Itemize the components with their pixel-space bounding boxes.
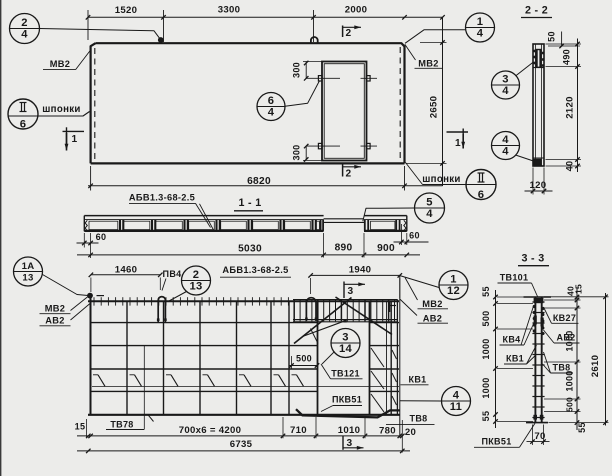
svg-text:шпонки: шпонки bbox=[422, 174, 460, 185]
svg-text:АВ2: АВ2 bbox=[45, 316, 64, 326]
svg-text:2610: 2610 bbox=[590, 355, 601, 378]
svg-text:МВ2: МВ2 bbox=[45, 304, 65, 314]
svg-text:6735: 6735 bbox=[230, 439, 253, 450]
svg-text:1: 1 bbox=[450, 274, 457, 286]
svg-text:55: 55 bbox=[481, 411, 491, 422]
svg-text:6820: 6820 bbox=[247, 176, 271, 187]
svg-text:6: 6 bbox=[478, 189, 485, 201]
svg-text:АБВ1.3-68-2.5: АБВ1.3-68-2.5 bbox=[222, 265, 288, 275]
svg-text:2120: 2120 bbox=[565, 96, 576, 119]
svg-text:4: 4 bbox=[477, 28, 484, 40]
svg-text:50: 50 bbox=[547, 31, 557, 42]
svg-text:490: 490 bbox=[562, 49, 572, 65]
svg-text:15: 15 bbox=[574, 284, 584, 294]
svg-text:ТВ8: ТВ8 bbox=[410, 413, 428, 423]
svg-text:1: 1 bbox=[72, 134, 78, 145]
svg-text:ТВ78: ТВ78 bbox=[110, 419, 133, 429]
svg-text:1: 1 bbox=[477, 16, 484, 28]
svg-text:1010: 1010 bbox=[338, 425, 361, 436]
svg-text:12: 12 bbox=[447, 285, 460, 297]
svg-text:5030: 5030 bbox=[238, 244, 262, 255]
svg-text:55: 55 bbox=[577, 422, 587, 433]
svg-text:1940: 1940 bbox=[349, 264, 372, 275]
svg-text:60: 60 bbox=[96, 232, 107, 242]
svg-text:3 - 3: 3 - 3 bbox=[522, 253, 545, 265]
svg-text:КВ1: КВ1 bbox=[506, 354, 524, 364]
svg-text:ПКВ51: ПКВ51 bbox=[481, 437, 511, 447]
svg-text:13: 13 bbox=[22, 273, 33, 284]
svg-text:1000: 1000 bbox=[481, 377, 491, 398]
svg-text:5: 5 bbox=[426, 197, 433, 209]
svg-text:40: 40 bbox=[565, 161, 575, 172]
svg-text:2: 2 bbox=[346, 169, 352, 180]
svg-text:КВ27: КВ27 bbox=[553, 313, 576, 323]
svg-text:3: 3 bbox=[348, 286, 354, 297]
svg-text:2: 2 bbox=[193, 269, 200, 281]
svg-text:МВ2: МВ2 bbox=[418, 59, 438, 69]
svg-text:4: 4 bbox=[502, 134, 509, 146]
svg-text:55: 55 bbox=[481, 286, 491, 297]
svg-text:60: 60 bbox=[409, 231, 420, 241]
svg-text:ПВ4: ПВ4 bbox=[163, 269, 182, 279]
svg-text:ТВ101: ТВ101 bbox=[500, 273, 529, 283]
svg-text:1520: 1520 bbox=[115, 5, 138, 16]
svg-text:2000: 2000 bbox=[345, 5, 368, 16]
svg-text:500: 500 bbox=[481, 311, 491, 327]
svg-text:1: 1 bbox=[455, 138, 461, 149]
svg-text:500: 500 bbox=[296, 354, 312, 364]
svg-text:3: 3 bbox=[342, 332, 349, 344]
svg-text:шпонки: шпонки bbox=[42, 104, 80, 115]
svg-text:1000: 1000 bbox=[481, 338, 491, 359]
svg-text:20: 20 bbox=[405, 427, 416, 438]
svg-text:500: 500 bbox=[565, 397, 575, 412]
svg-text:КВ1: КВ1 bbox=[409, 375, 427, 385]
svg-text:АВ2: АВ2 bbox=[423, 314, 442, 324]
svg-text:300: 300 bbox=[292, 145, 302, 161]
svg-text:4: 4 bbox=[21, 29, 28, 41]
svg-text:11: 11 bbox=[450, 401, 462, 413]
svg-text:14: 14 bbox=[339, 343, 353, 355]
svg-text:710: 710 bbox=[290, 425, 307, 436]
svg-text:3: 3 bbox=[347, 438, 353, 449]
svg-text:300: 300 bbox=[292, 62, 302, 78]
svg-text:ПКВ51: ПКВ51 bbox=[332, 395, 362, 405]
svg-text:780: 780 bbox=[379, 425, 396, 436]
svg-text:МВ2: МВ2 bbox=[50, 59, 70, 69]
svg-text:2 - 2: 2 - 2 bbox=[525, 5, 548, 17]
svg-text:4: 4 bbox=[502, 85, 509, 97]
svg-text:890: 890 bbox=[335, 243, 353, 254]
svg-text:1460: 1460 bbox=[115, 264, 138, 275]
svg-text:13: 13 bbox=[189, 281, 202, 293]
svg-text:АВ2: АВ2 bbox=[557, 333, 576, 343]
svg-text:2: 2 bbox=[21, 17, 28, 29]
svg-text:1000: 1000 bbox=[565, 370, 575, 391]
svg-text:2: 2 bbox=[346, 28, 352, 39]
svg-text:ТВ121: ТВ121 bbox=[331, 369, 360, 379]
svg-text:2650: 2650 bbox=[429, 96, 440, 119]
svg-text:АБВ1.3-68-2.5: АБВ1.3-68-2.5 bbox=[129, 192, 195, 202]
svg-text:900: 900 bbox=[377, 243, 395, 254]
svg-text:700x6 = 4200: 700x6 = 4200 bbox=[179, 425, 242, 436]
svg-text:120: 120 bbox=[530, 180, 547, 191]
svg-text:1 - 1: 1 - 1 bbox=[239, 197, 262, 209]
svg-text:4: 4 bbox=[453, 390, 460, 402]
svg-text:15: 15 bbox=[75, 421, 86, 431]
svg-text:4: 4 bbox=[502, 146, 509, 158]
svg-text:4: 4 bbox=[426, 208, 433, 220]
svg-text:3300: 3300 bbox=[218, 5, 241, 16]
svg-text:1А: 1А bbox=[22, 261, 35, 272]
svg-text:3: 3 bbox=[502, 74, 509, 86]
svg-text:70: 70 bbox=[534, 431, 545, 442]
svg-text:КВ4: КВ4 bbox=[503, 335, 521, 345]
svg-text:6: 6 bbox=[268, 95, 275, 107]
svg-text:6: 6 bbox=[20, 119, 27, 131]
svg-text:МВ2: МВ2 bbox=[422, 299, 442, 309]
svg-text:4: 4 bbox=[268, 107, 275, 119]
svg-text:ТВ8: ТВ8 bbox=[553, 363, 571, 373]
